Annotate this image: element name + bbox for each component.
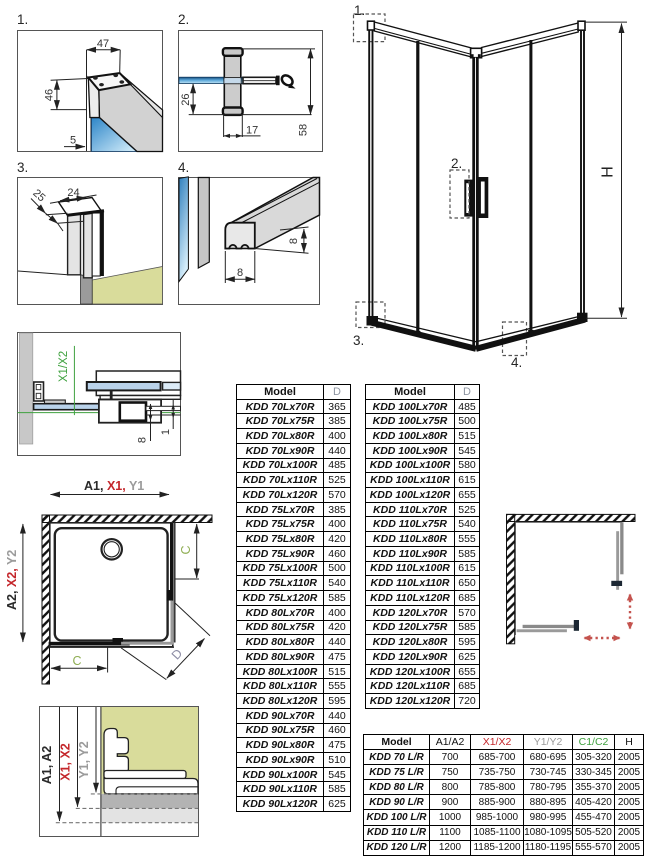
svg-text:8: 8 — [137, 437, 149, 443]
svg-text:8: 8 — [237, 267, 243, 279]
svg-text:24: 24 — [67, 187, 79, 199]
svg-text:A2, X2, Y2: A2, X2, Y2 — [5, 550, 19, 610]
svg-text:47: 47 — [97, 38, 109, 50]
svg-text:26: 26 — [180, 93, 192, 105]
svg-text:2.: 2. — [178, 12, 189, 27]
svg-text:C: C — [72, 654, 81, 668]
svg-text:D: D — [169, 646, 185, 662]
svg-text:1.: 1. — [17, 12, 28, 27]
svg-text:X1, X2: X1, X2 — [59, 743, 73, 781]
svg-text:58: 58 — [298, 124, 310, 136]
svg-text:A1, A2: A1, A2 — [40, 746, 54, 784]
svg-text:4.: 4. — [511, 355, 522, 370]
svg-text:H: H — [600, 166, 617, 178]
svg-text:4.: 4. — [178, 160, 189, 175]
svg-text:3.: 3. — [353, 333, 364, 348]
svg-text:X1/X2: X1/X2 — [58, 351, 70, 382]
svg-text:8: 8 — [288, 238, 300, 244]
svg-text:Y1, Y2: Y1, Y2 — [77, 741, 91, 778]
svg-text:1: 1 — [160, 429, 172, 435]
svg-text:5: 5 — [70, 135, 76, 147]
svg-text:46: 46 — [44, 89, 56, 101]
svg-text:3.: 3. — [17, 160, 28, 175]
svg-text:17: 17 — [246, 125, 258, 137]
svg-text:1.: 1. — [354, 3, 365, 18]
svg-text:C: C — [179, 545, 193, 554]
svg-text:2.: 2. — [451, 156, 462, 171]
svg-text:A1, X1, Y1: A1, X1, Y1 — [84, 479, 144, 493]
